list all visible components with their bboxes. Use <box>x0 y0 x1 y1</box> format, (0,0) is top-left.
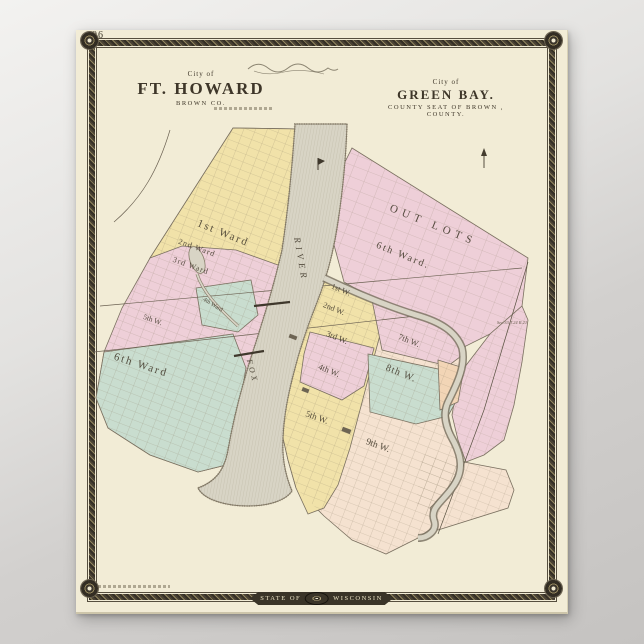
title-kicker: City of <box>379 78 513 86</box>
corner-rosette-icon <box>545 580 562 597</box>
corner-rosette-icon <box>81 580 98 597</box>
atlas-map-poster: 96 City of FT. HOWARD BROWN CO. City of … <box>76 30 568 614</box>
section-annotation: Sec.33 T.24 R.21 <box>497 320 527 325</box>
county-subtitle: BROWN CO. <box>134 100 268 107</box>
title-ft-howard: City of FT. HOWARD BROWN CO. <box>134 70 268 107</box>
corner-rosette-icon <box>545 32 562 49</box>
corner-rosette-icon <box>81 32 98 49</box>
city-map: 1st Ward 2nd Ward 3rd Ward 4th Ward 5th … <box>86 110 556 580</box>
city-title-green-bay: GREEN BAY. <box>379 87 513 103</box>
imprint-microtext <box>98 585 170 588</box>
banner-medallion-icon <box>305 592 329 605</box>
banner-state-of: STATE OF <box>260 595 301 602</box>
state-of-wisconsin-banner: STATE OF WISCONSIN <box>250 592 393 605</box>
title-kicker: City of <box>134 70 268 78</box>
banner-wisconsin: WISCONSIN <box>333 595 383 602</box>
north-arrow-icon <box>481 148 487 168</box>
city-title-ft-howard: FT. HOWARD <box>134 79 268 99</box>
